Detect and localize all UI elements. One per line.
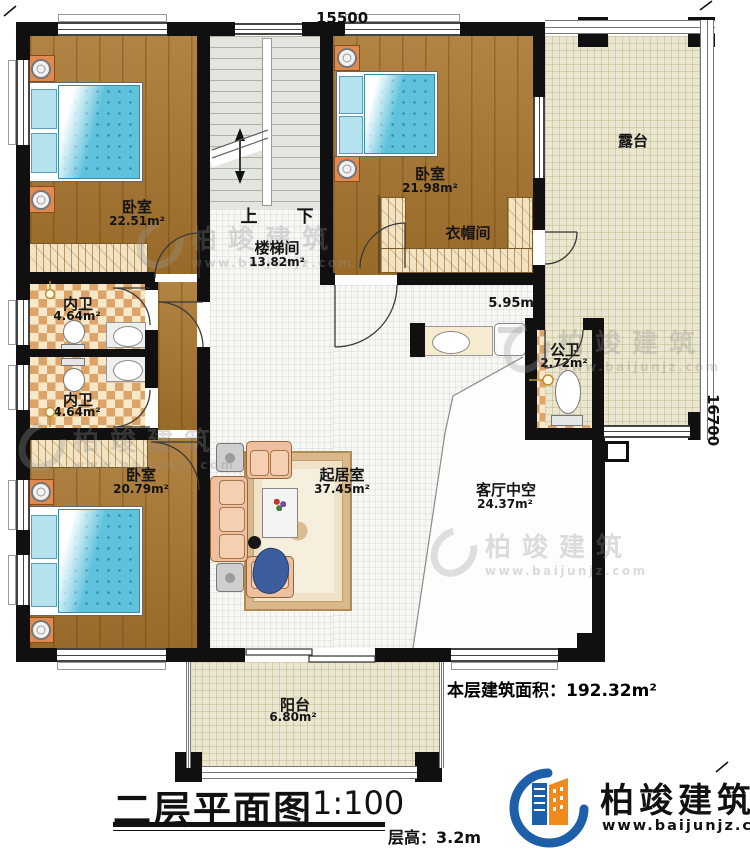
- floor-corridor-bathrooms: [158, 282, 197, 430]
- wall-segment: [145, 282, 158, 290]
- window: [16, 300, 30, 345]
- wall-segment: [16, 648, 57, 662]
- window-sill: [8, 60, 16, 145]
- window-sill: [8, 555, 16, 605]
- basin: [432, 331, 470, 354]
- side-table: [216, 443, 244, 472]
- wall-segment: [525, 327, 537, 428]
- wall-segment: [320, 36, 333, 273]
- mattress: [58, 85, 140, 179]
- room-area-inner-bath-2: 4.64m²: [53, 405, 100, 419]
- pillow: [31, 515, 57, 559]
- room-area-inner-bath-1: 4.64m²: [53, 309, 100, 323]
- wall-segment: [145, 330, 158, 388]
- toilet-public-bath: [551, 370, 583, 428]
- basin: [113, 326, 143, 347]
- staircase: [210, 36, 320, 210]
- window: [16, 365, 30, 410]
- logo-website: www.baijunjz.com: [602, 818, 750, 834]
- window: [57, 648, 166, 662]
- nightstand: [27, 479, 54, 505]
- window: [235, 23, 302, 35]
- room-area-hall: 37.45m²: [314, 482, 370, 496]
- room-area-balcony: 6.80m²: [269, 710, 316, 724]
- room-area-bedroom-top-left: 22.51m²: [109, 214, 165, 228]
- plan-scale: 1:100: [312, 784, 404, 822]
- wall-segment: [592, 318, 604, 428]
- wall-segment: [166, 648, 245, 662]
- wall-segment: [16, 410, 30, 480]
- wall-segment: [460, 22, 545, 36]
- nightstand: [334, 45, 360, 71]
- window: [533, 97, 545, 178]
- nightstand: [27, 55, 55, 82]
- washing-machine: [494, 323, 526, 356]
- wall-segment: [16, 605, 30, 650]
- window: [604, 425, 690, 438]
- sliding-door: [246, 649, 375, 662]
- toilet-tank: [61, 358, 85, 366]
- room-area-stairwell: 13.82m²: [249, 255, 305, 269]
- lamp-icon: [31, 620, 51, 640]
- company-logo-icon: [498, 761, 598, 851]
- basin: [113, 360, 143, 381]
- wall-segment: [533, 178, 545, 230]
- balcony-column: [415, 752, 442, 782]
- stair-break: [207, 133, 269, 168]
- sofa-cushion: [219, 534, 245, 559]
- wall-segment: [16, 22, 58, 36]
- dimension-right: 16700: [704, 394, 722, 446]
- window-sill: [8, 365, 16, 410]
- wall-segment: [197, 36, 210, 302]
- flower-decor: [272, 497, 288, 513]
- window: [58, 22, 167, 36]
- bed-top-right: [336, 71, 438, 157]
- room-area-public-bath: 2.72m²: [540, 356, 587, 370]
- floor-plan-canvas: 柏竣建筑www.baijunjz.com 柏竣建筑www.baijunjz.co…: [0, 0, 750, 851]
- nightstand: [27, 186, 55, 213]
- wall-segment: [410, 323, 425, 357]
- wall-segment: [525, 318, 545, 330]
- sofa-loveseat: [246, 441, 292, 479]
- lamp-icon: [31, 59, 51, 79]
- dimension-top: 15500: [316, 9, 368, 27]
- coffee-table: [262, 488, 298, 538]
- pillow: [339, 116, 363, 154]
- toilet-tank: [551, 415, 583, 426]
- lamp-icon: [337, 159, 357, 179]
- sofa-cushion: [270, 450, 289, 476]
- mattress: [364, 74, 435, 154]
- lamp-icon: [337, 48, 357, 68]
- wall-segment: [375, 648, 451, 662]
- wall-segment: [592, 425, 604, 438]
- balcony-railing: [202, 766, 417, 779]
- wall-segment: [397, 273, 533, 285]
- wall-segment: [16, 272, 155, 284]
- bed-bottom-left: [27, 506, 143, 616]
- wall-segment: [16, 36, 30, 60]
- stair-stringer: [262, 38, 272, 206]
- room-area-corridor: 5.95m²: [488, 296, 539, 311]
- side-table: [216, 563, 244, 592]
- window: [16, 60, 30, 145]
- wall-segment: [320, 273, 335, 285]
- wall-segment: [197, 347, 210, 430]
- company-logo: 柏竣建筑 www.baijunjz.com: [498, 761, 750, 851]
- wall-segment: [592, 430, 605, 650]
- pillow: [31, 133, 57, 173]
- terrace-railing: [700, 20, 714, 440]
- wall-notch: [605, 441, 629, 462]
- logo-company-name: 柏竣建筑: [600, 773, 750, 822]
- balcony-railing: [439, 662, 444, 768]
- balcony-railing: [186, 662, 191, 768]
- wall-segment: [167, 22, 235, 36]
- sofa-cushion: [250, 450, 269, 476]
- room-area-living-void: 24.37m²: [477, 497, 533, 511]
- wall-segment: [533, 36, 545, 97]
- wall-segment: [16, 349, 145, 357]
- stair-up-label: 上: [241, 202, 258, 227]
- sofa-left: [210, 476, 248, 562]
- toilet-bowl: [555, 370, 581, 414]
- floor-height-note: 层高：3.2m: [388, 824, 481, 848]
- floor-area-note: 本层建筑面积：192.32m²: [447, 676, 657, 701]
- window-sill: [8, 300, 16, 345]
- pillow: [31, 563, 57, 607]
- title-underline: [113, 822, 385, 827]
- room-label-terrace: 露台: [618, 130, 648, 151]
- stair-down-label: 下: [297, 202, 314, 227]
- pillow: [339, 76, 363, 114]
- toilet-inner-bath-1: [61, 320, 85, 352]
- room-area-bedroom-bottom-left: 20.79m²: [113, 482, 169, 496]
- window-sill: [57, 662, 166, 670]
- bed-top-left: [27, 82, 143, 182]
- sofa-cushion: [219, 507, 245, 532]
- nightstand: [334, 156, 360, 182]
- lamp-icon: [31, 190, 51, 210]
- pillow: [31, 89, 57, 129]
- nightstand: [27, 617, 54, 643]
- room-area-bedroom-top-right: 21.98m²: [402, 181, 458, 195]
- wardrobe-bedroom-top-left: [28, 243, 148, 273]
- ball-decor: [248, 536, 261, 549]
- room-label-cloakroom: 衣帽间: [445, 222, 490, 243]
- wall-segment: [16, 428, 155, 440]
- window: [16, 480, 30, 530]
- window: [451, 648, 558, 662]
- wall-segment: [16, 530, 30, 555]
- toilet-inner-bath-2: [61, 358, 85, 390]
- terrace-railing: [545, 20, 715, 34]
- window: [16, 555, 30, 605]
- toilet-bowl: [63, 320, 85, 344]
- sofa-cushion: [219, 480, 245, 505]
- title-underline-thin: [113, 830, 385, 831]
- cloakroom-partition: [378, 195, 380, 273]
- lamp-icon: [31, 482, 51, 502]
- window-sill: [8, 480, 16, 530]
- vanity-counter: [423, 326, 493, 356]
- sink-inner-bath-1: [106, 322, 146, 348]
- corner-column: [577, 633, 605, 662]
- window-sill: [58, 14, 167, 22]
- sink-inner-bath-2: [106, 356, 146, 382]
- window-sill: [451, 662, 558, 670]
- mattress: [58, 509, 140, 613]
- wardrobe-cloakroom-bottom: [380, 248, 533, 273]
- wall-segment: [197, 430, 210, 650]
